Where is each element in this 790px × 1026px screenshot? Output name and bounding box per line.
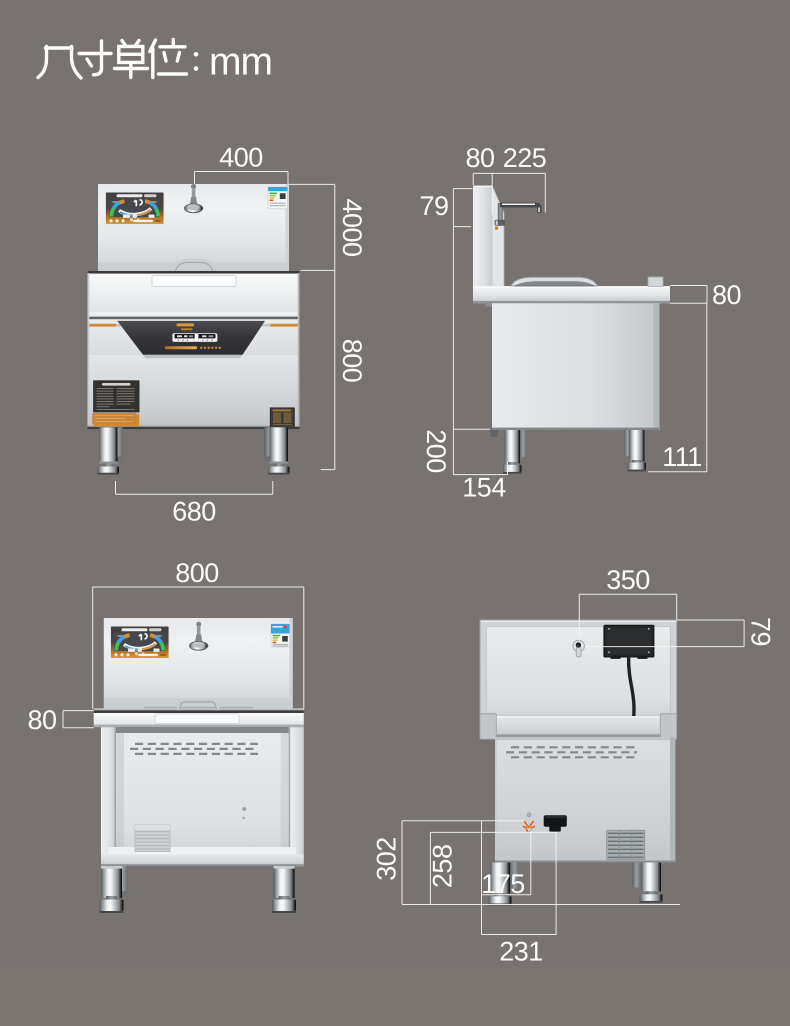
svg-text:680: 680 [172,497,216,527]
svg-text:231: 231 [499,937,543,967]
svg-text:175: 175 [481,869,525,899]
svg-text:4000: 4000 [337,198,367,256]
svg-text:80: 80 [27,705,56,735]
svg-text:350: 350 [606,565,650,595]
svg-text:80: 80 [465,143,494,173]
svg-text:79: 79 [419,191,448,221]
svg-text:258: 258 [428,845,458,889]
svg-text:111: 111 [662,442,702,472]
svg-text:302: 302 [371,837,401,881]
svg-text:400: 400 [219,143,263,173]
svg-text:800: 800 [175,558,219,588]
svg-text:800: 800 [337,339,367,383]
svg-text:79: 79 [746,617,776,646]
svg-text:80: 80 [712,280,741,310]
svg-text:mm: mm [209,41,272,84]
svg-text:225: 225 [503,143,547,173]
svg-text:200: 200 [421,429,451,473]
svg-text:154: 154 [462,473,506,503]
